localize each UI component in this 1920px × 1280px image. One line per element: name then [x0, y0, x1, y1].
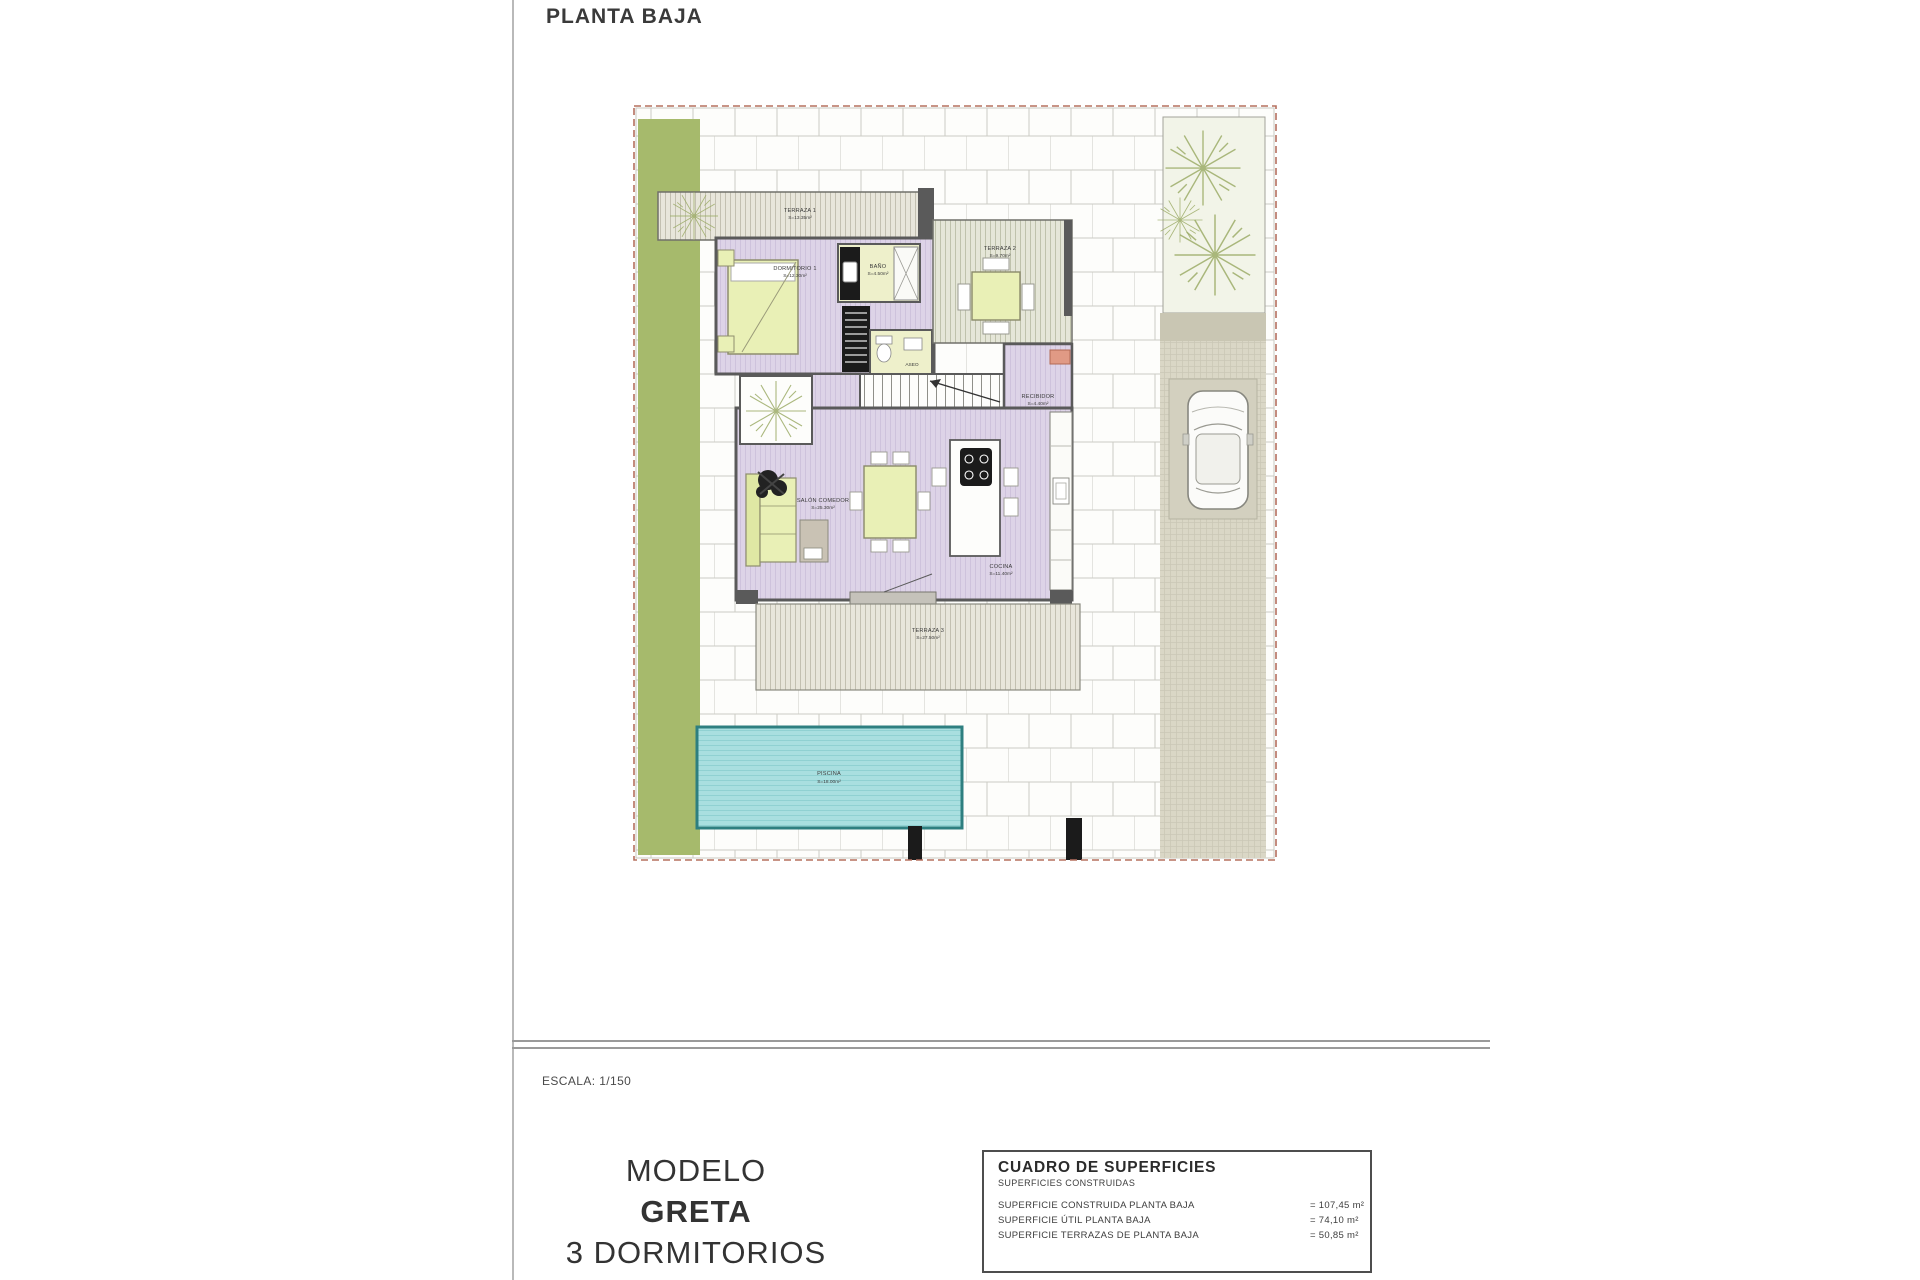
room-area: S=13.35m²	[788, 215, 812, 221]
wardrobe	[842, 306, 870, 372]
chair	[871, 452, 887, 464]
room-dormitorio-block: DORMITORIO 1 S=12.30m² BAÑO S=4.50m² ASE…	[716, 238, 934, 374]
room-label: ASEO	[905, 362, 919, 368]
surfaces-table-rows: SUPERFICIE CONSTRUIDA PLANTA BAJA = 107,…	[998, 1198, 1370, 1243]
room-area: S=11.40m²	[989, 571, 1013, 577]
chair	[1022, 284, 1034, 310]
chair	[871, 540, 887, 552]
nightstand	[718, 250, 734, 266]
model-line-2: GRETA	[500, 1191, 892, 1232]
site-plan: TERRAZA 1 S=13.35m² DORMITORIO 1 S=12.30…	[600, 95, 1290, 870]
chair	[983, 258, 1009, 270]
sink	[904, 338, 922, 350]
toilet-tank	[876, 336, 892, 344]
row-value: = 107,45 m²	[1310, 1198, 1364, 1213]
room-aseo: ASEO	[870, 330, 932, 374]
pool: PISCINA S=18.00m²	[697, 727, 962, 828]
row-value: = 74,10 m²	[1310, 1213, 1359, 1228]
table-row: SUPERFICIE CONSTRUIDA PLANTA BAJA = 107,…	[998, 1198, 1370, 1213]
table-row: SUPERFICIE TERRAZAS DE PLANTA BAJA = 50,…	[998, 1228, 1370, 1243]
chair	[893, 452, 909, 464]
room-label: TERRAZA 1	[784, 208, 816, 214]
table-row: SUPERFICIE ÚTIL PLANTA BAJA = 74,10 m²	[998, 1213, 1370, 1228]
room-label: COCINA	[990, 564, 1013, 570]
hallway	[812, 374, 860, 408]
car	[1183, 391, 1253, 509]
sliding-door	[850, 592, 936, 604]
kitchen-counter	[1050, 412, 1072, 590]
chair	[850, 492, 862, 510]
car-mirror	[1183, 434, 1189, 445]
stool	[1004, 468, 1018, 486]
entry-door	[1050, 350, 1070, 364]
trees-area	[1158, 117, 1266, 313]
car-mirror	[1247, 434, 1253, 445]
room-bano: BAÑO S=4.50m²	[838, 244, 920, 302]
row-label: SUPERFICIE CONSTRUIDA PLANTA BAJA	[998, 1198, 1310, 1213]
site-plan-svg: TERRAZA 1 S=13.35m² DORMITORIO 1 S=12.30…	[600, 95, 1290, 870]
surfaces-table-title: CUADRO DE SUPERFICIES	[998, 1159, 1370, 1177]
row-value: = 50,85 m²	[1310, 1228, 1359, 1243]
stairs	[860, 374, 1004, 408]
kitchen-sink	[1053, 478, 1069, 504]
cooktop	[960, 448, 992, 486]
room-area: S=12.30m²	[783, 273, 807, 279]
room-label: BAÑO	[870, 263, 887, 270]
room-area: S=4.40m²	[1028, 401, 1049, 407]
room-terraza-2: TERRAZA 2 S=9.70m²	[933, 220, 1072, 343]
chair	[983, 322, 1009, 334]
chair	[958, 284, 970, 310]
sink	[843, 262, 857, 282]
outdoor-table	[972, 272, 1020, 320]
row-label: SUPERFICIE ÚTIL PLANTA BAJA	[998, 1213, 1310, 1228]
gate-post	[1066, 818, 1082, 860]
page-title: PLANTA BAJA	[546, 5, 703, 29]
model-title-block: MODELO GRETA 3 DORMITORIOS	[500, 1150, 892, 1273]
room-area: S=9.70m²	[990, 253, 1011, 259]
room-label: PISCINA	[817, 771, 841, 777]
model-line-1: MODELO	[500, 1150, 892, 1191]
surfaces-table-subtitle: SUPERFICIES CONSTRUIDAS	[998, 1178, 1370, 1188]
model-line-3: 3 DORMITORIOS	[500, 1232, 892, 1273]
driveway	[1160, 313, 1266, 858]
room-area: S=18.00m²	[817, 779, 841, 785]
patio-tree	[740, 376, 812, 444]
room-terraza-1: TERRAZA 1 S=13.35m²	[658, 188, 934, 244]
surfaces-table: CUADRO DE SUPERFICIES SUPERFICIES CONSTR…	[982, 1150, 1372, 1273]
room-label: TERRAZA 3	[912, 628, 944, 634]
scale-label: ESCALA: 1/150	[542, 1074, 631, 1088]
room-label: DORMITORIO 1	[773, 266, 816, 272]
room-recibidor: RECIBIDOR S=4.40m²	[1004, 344, 1072, 408]
sheet-divider-bottom	[512, 1047, 1490, 1049]
toilet	[877, 344, 891, 362]
room-label: RECIBIDOR	[1022, 394, 1055, 400]
room-label: TERRAZA 2	[984, 246, 1016, 252]
nightstand	[718, 336, 734, 352]
chair	[893, 540, 909, 552]
sheet-left-border	[512, 0, 514, 1280]
room-label: SALÓN COMEDOR	[797, 497, 849, 504]
room-area: S=4.50m²	[868, 271, 889, 277]
room-terraza-3: TERRAZA 3 S=27.50m²	[756, 604, 1080, 690]
sheet-divider-top	[512, 1040, 1490, 1042]
side-table-tray	[804, 548, 822, 559]
room-area: S=27.50m²	[916, 635, 940, 641]
chair	[918, 492, 930, 510]
stool	[932, 468, 946, 486]
row-label: SUPERFICIE TERRAZAS DE PLANTA BAJA	[998, 1228, 1310, 1243]
room-area: S=25.30m²	[811, 505, 835, 511]
stool	[1004, 498, 1018, 516]
gate-post	[908, 826, 922, 860]
